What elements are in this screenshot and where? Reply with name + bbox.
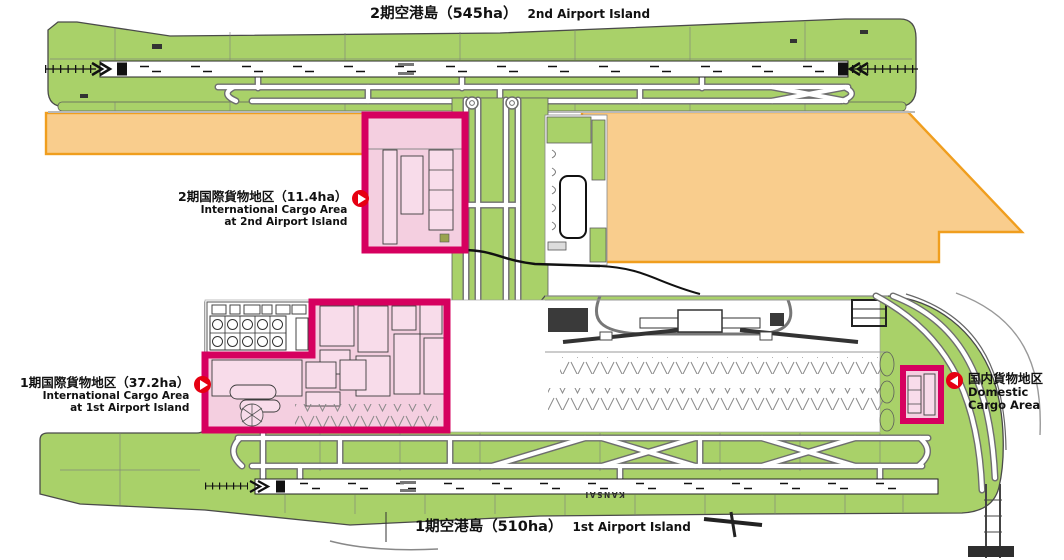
terminal-dark-block-west — [548, 308, 588, 332]
play-arrow-right-icon[interactable] — [352, 190, 369, 207]
title-1st-airport-island: 1期空港島（510ha） 1st Airport Island — [415, 519, 691, 536]
intl-cargo-area-2nd-highlight — [365, 115, 465, 250]
apron-stands-row-upper — [560, 357, 890, 374]
airport-layout-map — [0, 0, 1064, 560]
title-1st-ja: 1期空港島（510ha） — [415, 519, 562, 536]
play-arrow-right-icon[interactable] — [194, 376, 211, 393]
intl-cargo-2nd-en1: International Cargo Area — [178, 204, 347, 216]
intl-cargo-1st-ja: 1期国際貨物地区（37.2ha） — [20, 376, 189, 390]
intl-cargo-1st-en1: International Cargo Area — [20, 390, 189, 402]
intl-cargo-2nd-ja: 2期国際貨物地区（11.4ha） — [178, 190, 347, 204]
airport-map-page: 2期空港島（545ha） 2nd Airport Island 2期国際貨物地区… — [0, 0, 1064, 560]
runway-2nd-island — [45, 61, 918, 77]
intl-cargo-2nd-label[interactable]: 2期国際貨物地区（11.4ha） International Cargo Are… — [178, 190, 369, 229]
domestic-cargo-ja: 国内貨物地区 — [968, 372, 1060, 386]
southwest-breakwater — [330, 541, 438, 550]
domestic-cargo-area-highlight — [903, 368, 941, 421]
fuel-tank-farm — [207, 302, 313, 355]
domestic-cargo-label[interactable]: 国内貨物地区 Domestic Cargo Area — [946, 372, 1060, 412]
intl-cargo-1st-label[interactable]: 1期国際貨物地区（37.2ha） International Cargo Are… — [20, 376, 211, 415]
title-1st-en: 1st Airport Island — [572, 521, 690, 535]
domestic-cargo-en: Domestic Cargo Area — [968, 386, 1060, 412]
play-arrow-left-icon[interactable] — [946, 372, 963, 389]
title-2nd-ja: 2期空港島（545ha） — [370, 6, 517, 23]
apron-stands-row-lower — [548, 388, 888, 410]
connector-apron-zone — [545, 115, 607, 265]
runway-1st-island — [205, 479, 938, 494]
title-2nd-en: 2nd Airport Island — [527, 8, 650, 22]
intl-cargo-1st-en2: at 1st Airport Island — [20, 402, 189, 414]
runway-name-text: KANSAI — [584, 490, 625, 499]
intl-cargo-2nd-en2: at 2nd Airport Island — [178, 216, 347, 228]
title-2nd-airport-island: 2期空港島（545ha） 2nd Airport Island — [370, 6, 650, 23]
future-land-block — [582, 112, 1022, 262]
